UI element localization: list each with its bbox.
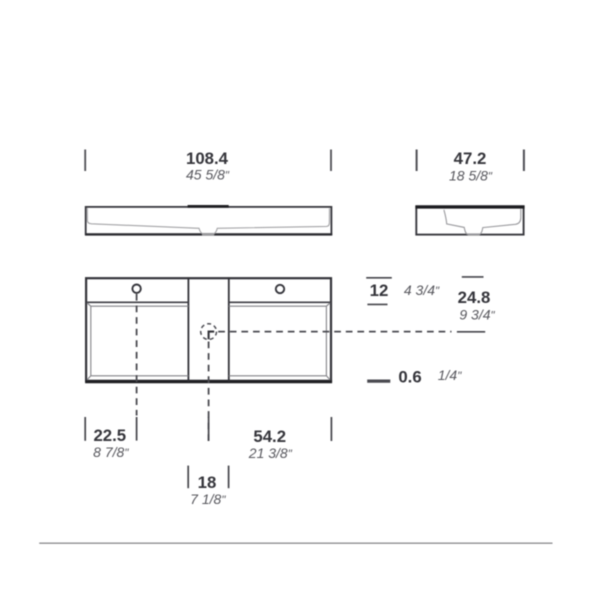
- svg-text:18: 18: [198, 473, 217, 492]
- svg-text:18 5/8": 18 5/8": [449, 168, 493, 184]
- svg-text:47.2: 47.2: [454, 149, 487, 168]
- svg-text:108.4: 108.4: [186, 149, 229, 168]
- svg-text:54.2: 54.2: [253, 427, 286, 446]
- svg-text:21 3/8": 21 3/8": [248, 445, 293, 461]
- svg-text:12: 12: [370, 281, 389, 300]
- svg-text:7 1/8": 7 1/8": [190, 491, 226, 507]
- svg-text:45 5/8": 45 5/8": [186, 167, 230, 183]
- svg-text:24.8: 24.8: [458, 288, 491, 307]
- svg-text:0.6: 0.6: [398, 367, 421, 386]
- svg-text:22.5: 22.5: [93, 426, 126, 445]
- svg-text:8 7/8": 8 7/8": [93, 444, 129, 460]
- svg-text:9 3/4": 9 3/4": [459, 307, 495, 323]
- svg-text:4 3/4": 4 3/4": [404, 282, 440, 298]
